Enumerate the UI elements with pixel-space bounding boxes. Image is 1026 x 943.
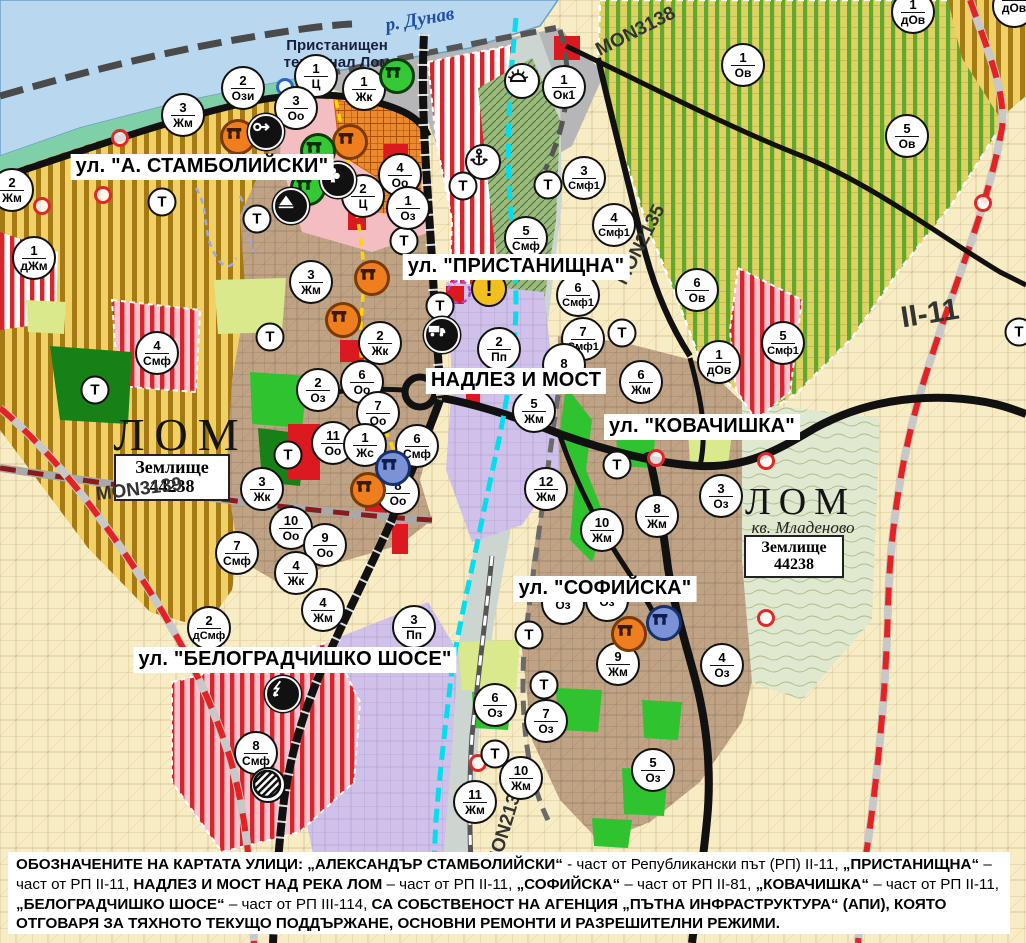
zone-marker-number: 10 [595, 516, 609, 529]
zone-marker-number: 7 [374, 399, 381, 412]
legend-text-segment: „БЕЛОГРАДЧИШКО ШОСЕ“ [16, 896, 225, 913]
zone-marker-Пп: 2Пп [477, 327, 521, 371]
zone-marker-Смф: 7Смф [215, 531, 259, 575]
zone-marker-number: 11 [468, 788, 482, 801]
zone-marker-code: Жк [254, 491, 271, 503]
zone-marker-number: 4 [292, 559, 299, 572]
lightning-black-icon [265, 676, 301, 712]
zone-marker-code: Жм [608, 666, 628, 678]
zone-marker-Оз: 3Оз [699, 474, 743, 518]
zone-marker-code: Жм [647, 518, 667, 530]
trans-station-marker: Т [81, 376, 110, 405]
zone-marker-code: Жм [631, 384, 651, 396]
zone-marker-code: Оо [390, 495, 407, 507]
zone-marker-code: дЖм [20, 260, 47, 272]
landplot-box: Землище 44238 [744, 535, 844, 578]
zone-marker-Оз: 5Оз [631, 748, 675, 792]
legend-text-segment: НАДЛЕЗ И МОСТ НАД РЕКА ЛОМ [133, 876, 382, 893]
trans-station-marker: Т [1005, 318, 1026, 347]
zone-marker-Ок1: 1Ок1 [542, 65, 586, 109]
zone-marker-number: 2 [314, 376, 321, 389]
trans-station-marker: Т [603, 451, 632, 480]
zone-marker-code: Пп [406, 629, 422, 641]
poi-ring [757, 609, 775, 627]
zone-marker-Смф1: 3Смф1 [562, 156, 606, 200]
zone-marker-code: Жм [173, 117, 193, 129]
arrow-black-icon [248, 114, 284, 150]
zone-marker-code: дОв [1002, 2, 1026, 14]
zone-marker-number: 2 [239, 74, 246, 87]
monument-orange-icon [325, 302, 361, 338]
zone-marker-Жк: 4Жк [274, 551, 318, 595]
zone-marker-code: Жм [465, 804, 485, 816]
road-code-label: II-11 [899, 293, 962, 336]
street-label: ул. "КОВАЧИШКА" [604, 414, 800, 440]
zone-marker-code: Жм [524, 413, 544, 425]
zone-marker-number: 3 [258, 475, 265, 488]
zone-marker-number: 10 [514, 764, 528, 777]
zone-marker-code: Ози [232, 90, 255, 102]
zone-marker-number: 5 [903, 122, 910, 135]
zone-marker-Оз: 2Оз [296, 368, 340, 412]
zone-marker-number: 5 [779, 329, 786, 342]
port-terminal-line1: Пристанищен [286, 37, 388, 54]
zone-marker-code: Ц [359, 198, 368, 210]
zone-marker-code: Жм [536, 491, 556, 503]
trans-station-marker: Т [530, 671, 559, 700]
zone-marker-Жм: 12Жм [524, 467, 568, 511]
zone-marker-Ов: 1Ов [721, 43, 765, 87]
zone-marker-number: 1 [560, 73, 567, 86]
zone-marker-Смф1: 5Смф1 [761, 321, 805, 365]
zone-marker-code: Оз [645, 772, 660, 784]
zone-marker-code: Жм [2, 192, 22, 204]
poi-ring [33, 197, 51, 215]
zone-marker-code: Жс [356, 447, 374, 459]
legend-footer: ОБОЗНАЧЕНИТЕ НА КАРТАТА УЛИЦИ: „АЛЕКСАНД… [8, 852, 1010, 934]
zone-marker-code: Оз [400, 210, 415, 222]
zone-marker-Жм: 8Жм [635, 494, 679, 538]
zone-marker-number: 6 [491, 691, 498, 704]
poi-ring [647, 449, 665, 467]
legend-text-segment: „КОВАЧИШКА“ [756, 876, 869, 893]
zone-marker-Жм: 10Жм [580, 508, 624, 552]
zone-marker-Оз: 1Оз [386, 186, 430, 230]
poi-ring [111, 129, 129, 147]
zone-marker-number: 1 [715, 348, 722, 361]
zone-marker-number: 1 [404, 194, 411, 207]
truck-black-icon [424, 317, 460, 353]
zone-marker-divider [566, 295, 590, 297]
zone-marker-code: Смф [242, 755, 270, 767]
trans-station-marker: Т [243, 205, 272, 234]
zone-marker-code: Жк [288, 575, 305, 587]
zone-marker-number: 11 [326, 429, 340, 442]
zone-marker-code: Оз [538, 723, 553, 735]
street-label: ул. "СОФИЙСКА" [514, 576, 697, 602]
legend-text-segment: – част от РП II-11, [869, 876, 999, 893]
zone-marker-divider [572, 178, 596, 180]
legend-text-segment: – част от РП III-114, [225, 896, 372, 913]
zone-marker-code: Жм [313, 612, 333, 624]
monument-orange-icon [611, 616, 647, 652]
trans-station-marker: Т [148, 188, 177, 217]
zone-marker-code: Ок1 [553, 89, 575, 101]
zone-marker-Жм: 10Жм [499, 756, 543, 800]
monument-green-icon [379, 58, 415, 94]
zone-marker-number: 5 [649, 756, 656, 769]
trans-station-marker: Т [256, 323, 285, 352]
monument-orange-icon [354, 260, 390, 296]
zone-marker-number: 5 [530, 397, 537, 410]
monument-blue-icon [375, 450, 411, 486]
zone-marker-number: 2 [359, 182, 366, 195]
zone-marker-code: Оо [317, 547, 334, 559]
legend-text-segment: ОБОЗНАЧЕНИТЕ НА КАРТАТА УЛИЦИ: „АЛЕКСАНД… [16, 856, 563, 873]
zone-marker-number: 2 [376, 329, 383, 342]
zone-marker-divider [602, 225, 626, 227]
zone-marker-code: Смф1 [598, 227, 630, 239]
zone-marker-Пп: 3Пп [392, 605, 436, 649]
street-label: ул. "БЕЛОГРАДЧИШКО ШОСЕ" [133, 647, 456, 673]
zone-marker-code: Смф1 [767, 345, 799, 357]
trans-station-marker: Т [515, 621, 544, 650]
street-label: НАДЛЕЗ И МОСТ [426, 368, 606, 394]
zone-marker-code: Ов [689, 292, 706, 304]
zone-marker-number: 12 [539, 475, 553, 488]
zone-marker-number: 1 [360, 75, 367, 88]
monument-orange-icon [332, 124, 368, 160]
road-code-label: MON3138 [592, 3, 679, 62]
zone-marker-number: 7 [579, 325, 586, 338]
landplot-name: Землище [761, 539, 826, 556]
zone-marker-code: Оз [487, 707, 502, 719]
zone-marker-Жм: 6Жм [619, 360, 663, 404]
zone-marker-number: 1 [30, 244, 37, 257]
zone-marker-number: 8 [653, 502, 660, 515]
zone-marker-number: 1 [739, 51, 746, 64]
legend-text-segment: „ПРИСТАНИЩНА“ [843, 856, 979, 873]
zone-marker-number: 1 [312, 62, 319, 75]
poi-ring [974, 194, 992, 212]
landplot-code: 44238 [774, 556, 814, 573]
zone-marker-number: 2 [8, 176, 15, 189]
zone-marker-number: 4 [718, 651, 725, 664]
zone-marker-number: 9 [614, 650, 621, 663]
zone-marker-Оз: 6Оз [473, 683, 517, 727]
zone-marker-Оз: 7Оз [524, 699, 568, 743]
zone-marker-code: Смф1 [562, 297, 594, 309]
zone-marker-code: Пп [491, 351, 507, 363]
zone-marker-Смф1: 4Смф1 [592, 203, 636, 247]
zone-marker-number: 4 [610, 211, 617, 224]
zoning-map: р. Дунав Пристанищен терминал Лом ЛОМ ЛО… [0, 0, 1026, 943]
zone-marker-divider [771, 343, 795, 345]
zone-marker-number: 3 [179, 101, 186, 114]
zone-marker-code: Смф [143, 355, 171, 367]
zone-marker-number: 6 [358, 368, 365, 381]
zone-marker-code: Смф [223, 555, 251, 567]
zone-marker-Жк: 2Жк [358, 321, 402, 365]
zone-marker-number: 7 [233, 539, 240, 552]
zone-marker-number: 4 [396, 161, 403, 174]
zone-marker-number: 2 [205, 614, 212, 627]
zone-marker-number: 5 [522, 224, 529, 237]
zone-marker-code: Оз [713, 498, 728, 510]
zone-marker-Жк: 3Жк [240, 467, 284, 511]
zone-marker-Жм: 5Жм [512, 389, 556, 433]
zone-marker-дОв: 1дОв [697, 340, 741, 384]
zone-marker-code: Смф [512, 240, 540, 252]
road-code-label: MON3139 [95, 474, 184, 506]
zone-marker-number: 3 [580, 164, 587, 177]
zone-marker-code: Жм [511, 780, 531, 792]
zone-marker-Ов: 6Ов [675, 268, 719, 312]
zone-marker-code: Оо [283, 530, 300, 542]
zone-marker-дСмф: 2дСмф [187, 606, 231, 650]
zone-marker-code: Жм [592, 532, 612, 544]
zone-marker-code: Оз [310, 392, 325, 404]
zone-marker-code: дОв [901, 14, 925, 26]
trans-station-marker: Т [390, 227, 419, 256]
zone-marker-Жм: 3Жм [161, 93, 205, 137]
zone-marker-number: 3 [410, 613, 417, 626]
street-label: ул. "А. СТАМБОЛИЙСКИ" [71, 154, 334, 180]
zone-marker-number: 9 [321, 531, 328, 544]
zone-marker-number: 6 [574, 281, 581, 294]
zone-marker-number: 3 [717, 482, 724, 495]
legend-text-segment: „СОФИЙСКА“ [517, 876, 621, 893]
zone-marker-Оз: 4Оз [700, 643, 744, 687]
zone-marker-Жм: 11Жм [453, 780, 497, 824]
zone-marker-code: Ов [735, 67, 752, 79]
zone-marker-code: Оз [714, 667, 729, 679]
zone-marker-number: 4 [153, 339, 160, 352]
zone-marker-code: дОв [707, 364, 731, 376]
zone-marker-Ози: 2Ози [221, 66, 265, 110]
street-label: ул. "ПРИСТАНИЩНА" [403, 254, 630, 280]
zone-marker-code: Жк [372, 345, 389, 357]
zone-marker-Жм: 4Жм [301, 588, 345, 632]
zone-marker-code: Ц [312, 78, 321, 90]
zone-marker-number: 3 [307, 268, 314, 281]
zone-marker-code: Ов [899, 138, 916, 150]
zone-marker-number: 1 [909, 0, 916, 11]
zone-marker-number: 2 [495, 335, 502, 348]
zone-marker-number: 6 [693, 276, 700, 289]
zone-marker-code: Жк [356, 91, 373, 103]
anchor-white-icon [465, 144, 501, 180]
legend-text-segment: – част от РП II-11, [382, 876, 516, 893]
zone-marker-Смф: 4Смф [135, 331, 179, 375]
poi-ring [757, 452, 775, 470]
zone-marker-number: 1 [361, 431, 368, 444]
zone-marker-number: 8 [252, 739, 259, 752]
zone-marker-number: 4 [319, 596, 326, 609]
zone-marker-code: Смф1 [568, 180, 600, 192]
tunnel-black-icon [273, 188, 309, 224]
zone-marker-code: Оо [288, 110, 305, 122]
zone-marker-дЖм: 1дЖм [12, 236, 56, 280]
poi-ring [94, 186, 112, 204]
zone-marker-code: Оо [325, 445, 342, 457]
zone-marker-Жм: 3Жм [289, 260, 333, 304]
legend-text-segment: – част от РП II-81, [620, 876, 755, 893]
zone-marker-number: 10 [284, 514, 298, 527]
monument-blue-icon [646, 605, 682, 641]
trans-station-marker: Т [534, 171, 563, 200]
sun-white-icon [504, 63, 540, 99]
zone-marker-number: 6 [413, 432, 420, 445]
trans-station-marker: Т [274, 441, 303, 470]
zone-marker-code: Жм [301, 284, 321, 296]
zone-marker-number: 6 [637, 368, 644, 381]
zone-marker-divider [197, 628, 221, 630]
zone-marker-number: 7 [542, 707, 549, 720]
trans-station-marker: Т [608, 319, 637, 348]
hazard-striped-icon [250, 767, 286, 803]
zone-marker-number: 3 [292, 94, 299, 107]
zone-marker-Ов: 5Ов [885, 114, 929, 158]
zone-marker-divider [571, 339, 595, 341]
legend-text-segment: - част от Републикански път (РП) II-11, [563, 856, 843, 873]
zone-marker-code: дСмф [193, 630, 226, 642]
